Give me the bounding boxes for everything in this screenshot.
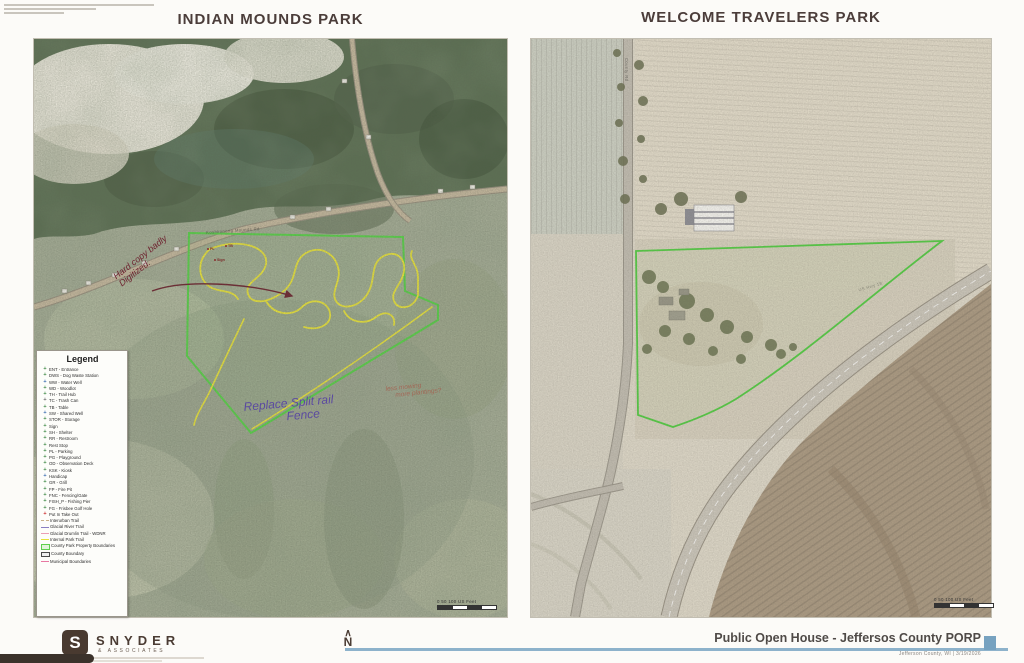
snyder-logo-icon: S bbox=[62, 630, 88, 655]
legend-item-label: Municipal Boundaries bbox=[50, 559, 91, 564]
legend-item: Municipal Boundaries bbox=[41, 559, 124, 564]
scale-text: 0 50 100 US Feet bbox=[934, 597, 1006, 602]
right-map-title: WELCOME TRAVELERS PARK bbox=[530, 9, 992, 26]
legend-item: +FP - Fire Pit bbox=[41, 487, 124, 492]
legend-swatch-point: + bbox=[41, 480, 49, 485]
legend-item: Glacial Drumlin Trail - WDNR bbox=[41, 531, 124, 536]
legend-item: +WW - Water Well bbox=[41, 380, 124, 385]
legend-swatch-point: + bbox=[41, 455, 49, 460]
legend-item: Glacial River Trail bbox=[41, 524, 124, 529]
facility-marker: PL bbox=[207, 247, 215, 251]
legend-item-label: Sign bbox=[49, 424, 58, 429]
legend-swatch-point: + bbox=[41, 392, 49, 397]
legend-title: Legend bbox=[41, 354, 124, 364]
legend-swatch-box bbox=[41, 552, 50, 558]
road-label: County Rd bbox=[624, 58, 629, 81]
legend-swatch-point: + bbox=[41, 417, 49, 422]
legend-item: +PG - Playground bbox=[41, 455, 124, 460]
north-arrow-icon: ∧ N bbox=[337, 630, 359, 648]
corner-strip bbox=[0, 654, 94, 663]
legend-item-label: TB - Table bbox=[49, 405, 69, 410]
legend-item: +STOR - Storage bbox=[41, 417, 124, 422]
legend-item: +OD - Observation Deck bbox=[41, 461, 124, 466]
scale-text: 0 50 100 US Feet bbox=[437, 599, 509, 604]
microprint-line bbox=[4, 4, 154, 6]
legend-swatch-point: + bbox=[41, 487, 49, 492]
legend-swatch-point: + bbox=[41, 430, 49, 435]
legend-swatch-line bbox=[41, 533, 49, 534]
legend-item-label: Handicap bbox=[49, 474, 67, 479]
legend-item-label: TH - Trail Hub bbox=[49, 392, 76, 397]
facility-marker: TB bbox=[225, 244, 233, 248]
legend: Legend +ENT - Entrance+DWS - Dog Waste S… bbox=[36, 350, 128, 617]
legend-swatch-point: + bbox=[41, 373, 49, 378]
microprint-line bbox=[4, 8, 96, 10]
north-letter: N bbox=[337, 637, 359, 648]
legend-item-label: WD - Woodlot bbox=[49, 386, 76, 391]
legend-swatch-point: + bbox=[41, 493, 49, 498]
legend-swatch-point: + bbox=[41, 424, 49, 429]
legend-item-label: OD - Observation Deck bbox=[49, 461, 93, 466]
legend-item-label: KSK - Kiosk bbox=[49, 468, 72, 473]
address-microprint bbox=[76, 657, 204, 659]
legend-item: County Boundary bbox=[41, 551, 124, 557]
legend-swatch-point: + bbox=[41, 468, 49, 473]
welcome-travelers-map[interactable] bbox=[530, 38, 992, 618]
legend-item: +WD - Woodlot bbox=[41, 386, 124, 391]
legend-item: +RR - Restroom bbox=[41, 436, 124, 441]
legend-swatch-point: + bbox=[41, 398, 49, 403]
legend-item-label: Glacial Drumlin Trail - WDNR bbox=[50, 531, 106, 536]
legend-item: +KSK - Kiosk bbox=[41, 468, 124, 473]
facility-marker: Sign bbox=[214, 258, 225, 262]
footer-accent-square bbox=[984, 636, 996, 650]
legend-swatch-point: + bbox=[41, 411, 49, 416]
legend-item: County Park Property Boundaries bbox=[41, 543, 124, 549]
legend-swatch-point: + bbox=[41, 499, 49, 504]
legend-item-label: SH - Shelter bbox=[49, 430, 72, 435]
legend-item-label: Internal Park Trail bbox=[50, 537, 84, 542]
legend-swatch-point: + bbox=[41, 512, 49, 517]
legend-item: +SW - Shared Well bbox=[41, 411, 124, 416]
legend-item: +Handicap bbox=[41, 474, 124, 479]
legend-item-label: SW - Shared Well bbox=[49, 411, 83, 416]
legend-item: +Sign bbox=[41, 424, 124, 429]
legend-item-label: DWS - Dog Waste Station bbox=[49, 373, 99, 378]
footer-title: Public Open House - Jeffersos County POR… bbox=[714, 631, 981, 645]
legend-swatch-point: + bbox=[41, 386, 49, 391]
legend-item: +PL - Parking bbox=[41, 449, 124, 454]
legend-swatch-point: + bbox=[41, 443, 49, 448]
legend-swatch-point: + bbox=[41, 367, 49, 372]
legend-item-label: Rest Stop bbox=[49, 443, 68, 448]
legend-item: +Put In Take Out bbox=[41, 512, 124, 517]
legend-swatch-point: + bbox=[41, 449, 49, 454]
legend-swatch-point: + bbox=[41, 506, 49, 511]
legend-item-label: PG - Playground bbox=[49, 455, 81, 460]
brand-name: SNYDER bbox=[96, 633, 180, 648]
legend-item: +TH - Trail Hub bbox=[41, 392, 124, 397]
legend-swatch-point: + bbox=[41, 474, 49, 479]
footer-subtitle: Jefferson County, WI | 3/19/2026 bbox=[899, 651, 981, 657]
legend-item-label: PL - Parking bbox=[49, 449, 72, 454]
legend-item-label: Interurban Trail bbox=[50, 518, 79, 523]
legend-item-label: TC - Trash Can bbox=[49, 398, 78, 403]
legend-swatch-point: + bbox=[41, 436, 49, 441]
legend-item: +FISH_P - Fishing Pier bbox=[41, 499, 124, 504]
legend-swatch-line bbox=[41, 561, 49, 562]
legend-item-label: STOR - Storage bbox=[49, 417, 80, 422]
left-map-title: INDIAN MOUNDS PARK bbox=[33, 11, 508, 28]
legend-swatch-point: + bbox=[41, 461, 49, 466]
legend-item: +Rest Stop bbox=[41, 443, 124, 448]
legend-item-label: RR - Restroom bbox=[49, 436, 78, 441]
legend-item: +TB - Table bbox=[41, 405, 124, 410]
scale-bar-right: 0 50 100 US Feet bbox=[934, 597, 1006, 608]
legend-item: +ENT - Entrance bbox=[41, 367, 124, 372]
legend-item-label: County Boundary bbox=[51, 551, 84, 556]
legend-item-label: FISH_P - Fishing Pier bbox=[49, 499, 90, 504]
legend-swatch-line bbox=[41, 539, 49, 540]
legend-items: +ENT - Entrance+DWS - Dog Waste Station+… bbox=[41, 367, 124, 564]
legend-swatch-box bbox=[41, 544, 50, 550]
legend-item-label: FG - Frisbee Golf Hole bbox=[49, 506, 92, 511]
legend-item: Interurban Trail bbox=[41, 518, 124, 523]
legend-item: +SH - Shelter bbox=[41, 430, 124, 435]
legend-swatch-dash bbox=[41, 520, 49, 521]
legend-item: +FG - Frisbee Golf Hole bbox=[41, 506, 124, 511]
legend-item-label: WW - Water Well bbox=[49, 380, 82, 385]
scale-bar-graphic bbox=[934, 603, 994, 608]
legend-swatch-line bbox=[41, 527, 49, 528]
legend-item: Internal Park Trail bbox=[41, 537, 124, 542]
legend-item-label: ENT - Entrance bbox=[49, 367, 79, 372]
legend-item: +TC - Trash Can bbox=[41, 398, 124, 403]
legend-item-label: Put In Take Out bbox=[49, 512, 79, 517]
legend-item: +FNC - Fencing/Gate bbox=[41, 493, 124, 498]
legend-swatch-point: + bbox=[41, 405, 49, 410]
legend-item-label: FNC - Fencing/Gate bbox=[49, 493, 87, 498]
scale-bar-left: 0 50 100 US Feet bbox=[437, 599, 509, 610]
legend-swatch-point: + bbox=[41, 380, 49, 385]
legend-item-label: Glacial River Trail bbox=[50, 524, 84, 529]
legend-item: +GR - Grill bbox=[41, 480, 124, 485]
welcome-travelers-aerial bbox=[531, 39, 991, 617]
legend-item-label: County Park Property Boundaries bbox=[51, 543, 115, 548]
legend-item-label: GR - Grill bbox=[49, 480, 67, 485]
scale-bar-graphic bbox=[437, 605, 497, 610]
brand-subtitle: & ASSOCIATES bbox=[98, 648, 165, 654]
legend-item-label: FP - Fire Pit bbox=[49, 487, 72, 492]
legend-item: +DWS - Dog Waste Station bbox=[41, 373, 124, 378]
